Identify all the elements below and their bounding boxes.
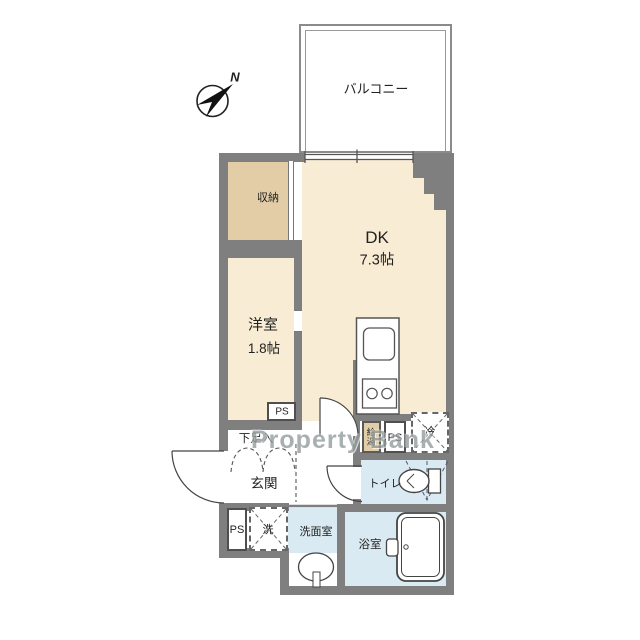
washer-label: 洗 [263, 521, 274, 537]
washroom-basin [299, 553, 334, 587]
entrance-door [172, 451, 224, 503]
western-room-size-label: 1.8帖 [248, 337, 280, 357]
plan-linework [0, 0, 640, 640]
floor-plan: バルコニー 収納 DK 7.3帖 洋室 1.8帖 PS 下足入 玄関 給湯 PS… [0, 0, 640, 640]
kitchen-sink [364, 328, 395, 360]
washroom-label: 洗面室 [300, 523, 333, 539]
toilet-label: トイレ [369, 475, 402, 491]
compass-icon [197, 84, 233, 117]
compass-north-label: N [230, 70, 239, 85]
bathtub [387, 513, 445, 581]
western-room-label: 洋室 [248, 314, 278, 335]
ps-entrance-label: PS [230, 524, 245, 536]
bathroom-label: 浴室 [359, 536, 382, 552]
balcony-window [305, 150, 413, 164]
entrance-label: 玄関 [251, 472, 278, 492]
watermark-text: Property Bank [251, 426, 435, 455]
toilet-fixture [399, 469, 441, 493]
kitchen-counter [357, 318, 400, 414]
basin-faucet [313, 572, 320, 587]
bathtub-handle [387, 539, 399, 556]
toilet-door [327, 466, 362, 502]
storage-label: 収納 [257, 189, 279, 205]
dk-label: DK [365, 228, 389, 248]
dk-size-label: 7.3帖 [360, 249, 395, 270]
ps-western-label: PS [275, 407, 288, 418]
balcony-label: バルコニー [344, 79, 409, 98]
kitchen-stove [363, 379, 397, 408]
